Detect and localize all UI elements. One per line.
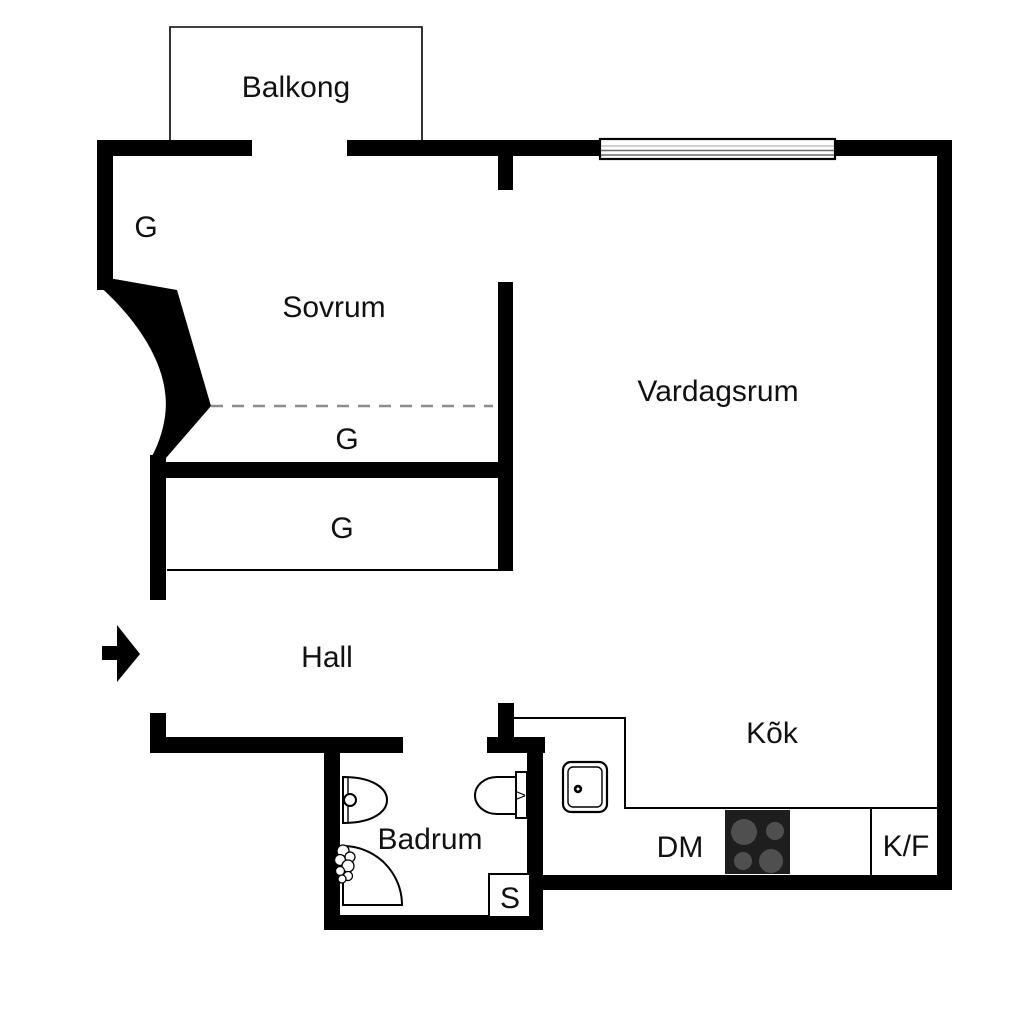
floor-plan: > Balkong Sovrum Vardagsrum Hall Kõk Bad…: [0, 0, 1024, 1024]
room-label-hall: Hall: [301, 641, 353, 674]
label-wardrobe-top: G: [134, 211, 157, 244]
floor-plan-page: > Balkong Sovrum Vardagsrum Hall Kõk Bad…: [0, 0, 1024, 1024]
wall-closet: [150, 462, 513, 478]
wall-curved: [97, 276, 211, 460]
label-dishwasher: DM: [657, 831, 704, 864]
wall-kitchen-stub: [498, 703, 514, 753]
room-label-bedroom: Sovrum: [282, 291, 385, 324]
kitchen-sink-icon: [563, 762, 607, 812]
entrance-arrow-icon: [102, 625, 140, 682]
sink-inner: [568, 767, 602, 807]
wall-bathroom-left: [324, 737, 340, 930]
room-label-balcony: Balkong: [242, 71, 350, 104]
wall-top-middle: [347, 140, 600, 156]
wall-hall-bottom: [150, 737, 403, 753]
wall-bottom-kitchen: [527, 875, 952, 890]
toilet-bowl: [475, 777, 516, 814]
stove-icon: [725, 810, 790, 874]
room-label-bathroom: Badrum: [377, 823, 482, 856]
washbasin-icon: [343, 777, 387, 823]
room-label-kitchen: Kõk: [746, 717, 799, 750]
wall-partition-top-stub: [498, 140, 513, 190]
wall-partition-bedroom: [498, 282, 513, 570]
label-wardrobe-middle: G: [335, 423, 358, 456]
wall-left-upper: [97, 140, 113, 290]
wall-top-right: [835, 140, 952, 156]
window-frame: [600, 139, 835, 159]
sink-drain-center: [577, 788, 580, 791]
room-label-living-room: Vardagsrum: [637, 375, 798, 408]
burner: [734, 852, 752, 870]
toilet-icon: >: [475, 772, 527, 818]
toilet-mark: >: [516, 786, 526, 805]
washbasin-tap: [344, 794, 356, 806]
window-symbol: [600, 139, 835, 159]
label-cabinet: S: [500, 882, 520, 915]
wall-right: [937, 140, 952, 890]
burner: [766, 822, 784, 840]
label-fridge-freezer: K/F: [883, 830, 930, 863]
wall-top-left: [97, 140, 252, 156]
burner: [731, 819, 757, 845]
label-wardrobe-lower: G: [330, 512, 353, 545]
burner: [759, 849, 783, 873]
